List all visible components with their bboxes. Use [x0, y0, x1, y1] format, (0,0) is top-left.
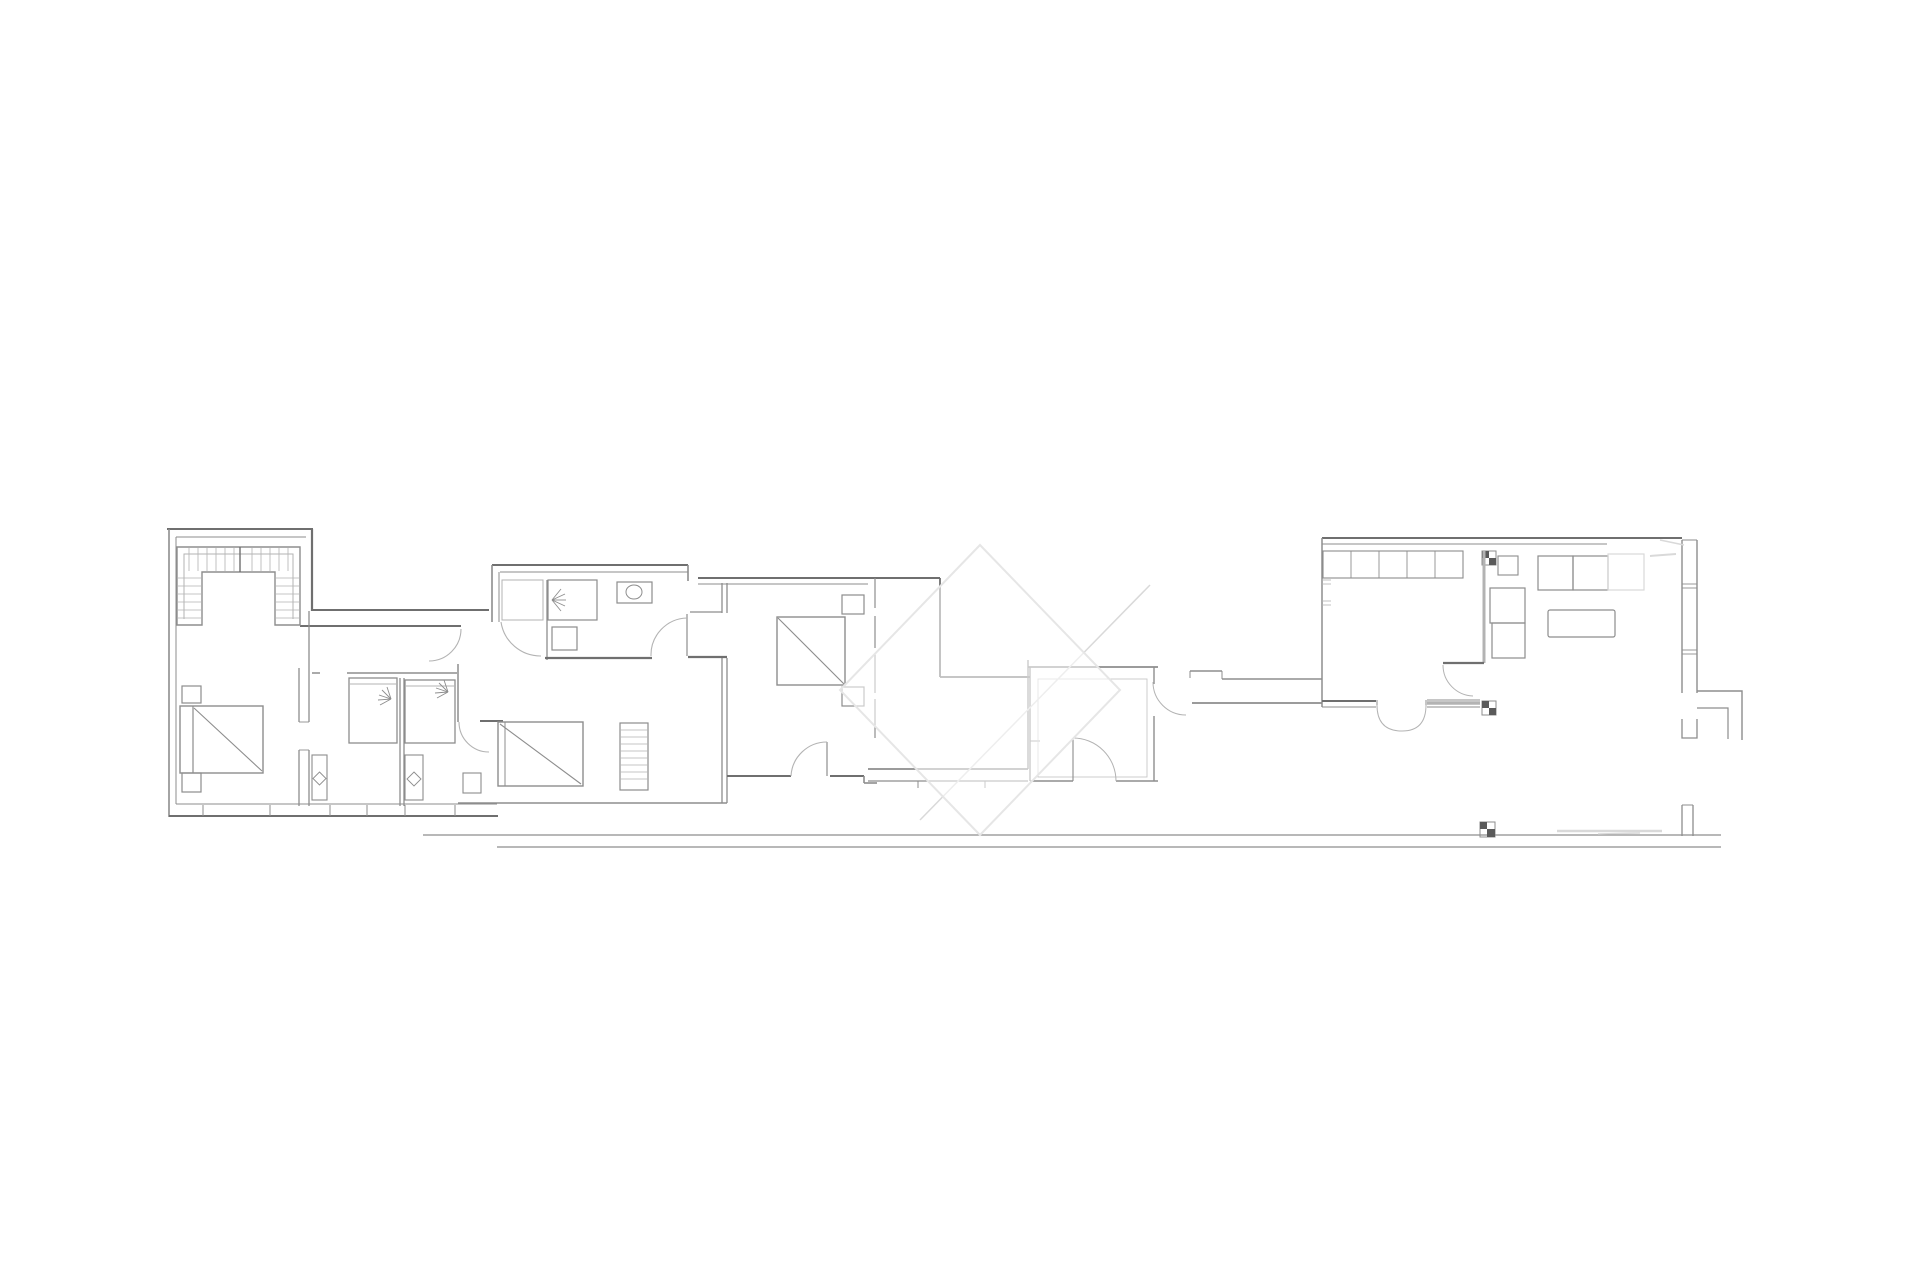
door-arc: [1073, 738, 1116, 781]
nightstand: [182, 686, 201, 703]
armchair: [1538, 556, 1573, 590]
wall: [1697, 691, 1742, 740]
column-checker-fill: [1480, 822, 1487, 829]
fridge: [1492, 623, 1525, 658]
door-arc: [501, 622, 541, 656]
door-arc: [1153, 682, 1186, 715]
door-arc: [1443, 665, 1473, 696]
armchair: [1573, 556, 1608, 590]
pencil-smudge: [1598, 833, 1640, 834]
door-arc: [791, 742, 827, 776]
bed-diagonal: [778, 618, 844, 684]
nightstand: [182, 773, 201, 792]
basin-bowl: [626, 585, 642, 599]
door-arc: [459, 722, 489, 752]
wall-pier: [1682, 719, 1697, 738]
floor-plan-page: [0, 0, 1920, 1280]
basin-diamond: [313, 772, 326, 785]
column-checker-fill: [1482, 701, 1489, 708]
washbasin: [463, 773, 481, 793]
door-arc: [429, 629, 461, 661]
armchair-sketch: [1608, 554, 1644, 590]
coffee-table: [1548, 610, 1615, 637]
wall: [1697, 708, 1728, 739]
bed: [349, 678, 397, 743]
wardrobe-inner: [184, 554, 293, 619]
column-checker-fill: [1489, 708, 1496, 715]
fridge: [1490, 588, 1525, 623]
column-checker-fill: [1489, 558, 1496, 565]
shelf-unit: [620, 723, 648, 790]
cabinet: [1498, 556, 1518, 575]
nightstand: [842, 595, 864, 614]
watermark-diamond: [840, 545, 1120, 835]
floor-plan-svg: [0, 0, 1920, 1280]
pencil-smudge: [1660, 540, 1684, 545]
washbasin: [405, 755, 423, 800]
double-door-arc: [1377, 705, 1402, 731]
bed-diagonal: [194, 708, 262, 771]
door-arc: [651, 618, 687, 656]
pencil-smudge: [1650, 554, 1676, 556]
basin-diamond: [407, 772, 421, 786]
shower-tray: [502, 580, 543, 620]
column-checker-fill: [1487, 829, 1495, 837]
double-door-arc: [1402, 705, 1426, 731]
kitchen-counter: [1323, 551, 1463, 578]
toilet: [552, 627, 577, 650]
bed-diagonal: [500, 724, 581, 784]
